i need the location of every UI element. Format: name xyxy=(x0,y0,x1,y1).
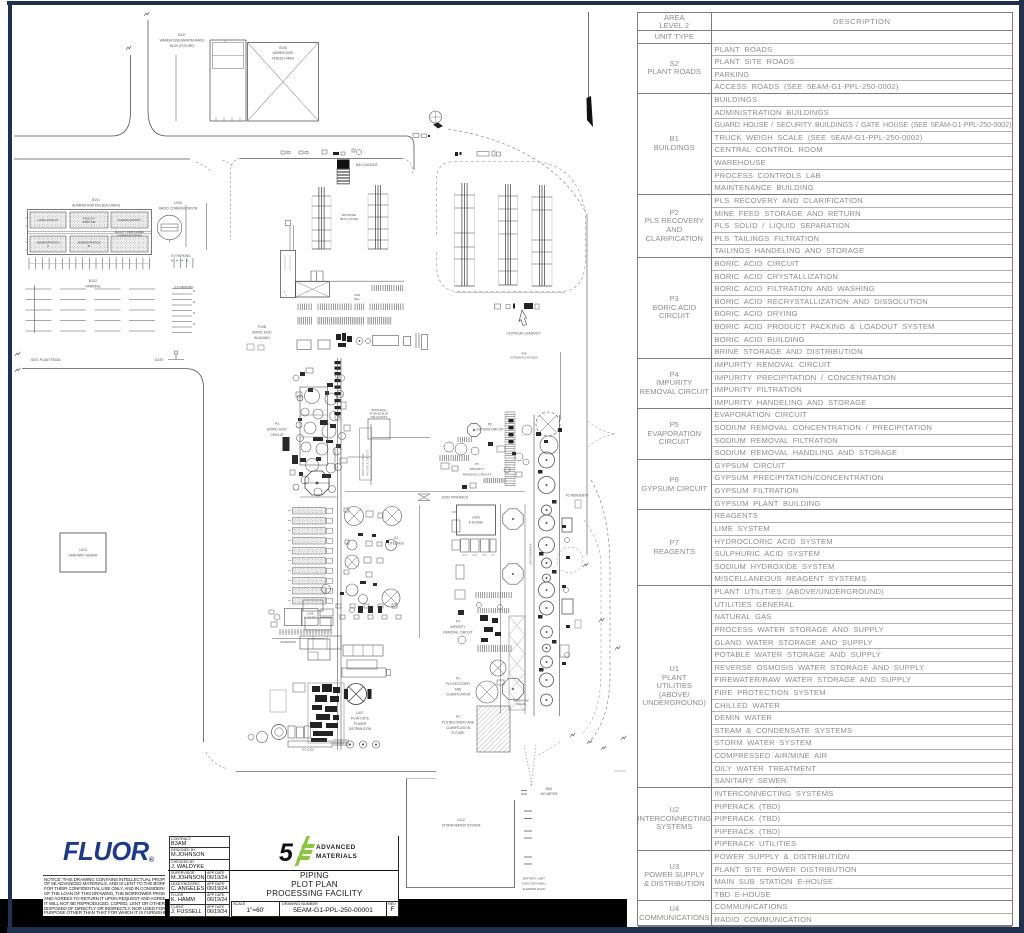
svg-text:PACKING & LOADOUT: PACKING & LOADOUT xyxy=(367,449,370,476)
svg-text:U203 PIPERACK: U203 PIPERACK xyxy=(333,448,337,470)
svg-text:BLDG (FUTURE): BLDG (FUTURE) xyxy=(170,44,195,48)
svg-text:PARKING: PARKING xyxy=(85,285,100,289)
svg-text:B105: B105 xyxy=(279,46,287,50)
svg-text:AND: AND xyxy=(455,687,462,691)
svg-text:FACILITY FIRST AID/EV: FACILITY FIRST AID/EV xyxy=(115,230,145,234)
svg-text:BA LOADOUT: BA LOADOUT xyxy=(356,163,378,167)
svg-text:WAREHOUSE/MAINTENANCE: WAREHOUSE/MAINTENANCE xyxy=(160,38,205,42)
svg-text:B102: B102 xyxy=(89,279,97,283)
svg-text:BATTERY LIMIT: BATTERY LIMIT xyxy=(523,877,545,881)
svg-text:U106: U106 xyxy=(174,201,182,205)
svg-text:P6: P6 xyxy=(488,423,492,427)
svg-text:U1: U1 xyxy=(394,536,398,540)
svg-text:CHANGE FACILITY: CHANGE FACILITY xyxy=(118,218,142,222)
svg-text:B107: B107 xyxy=(178,33,186,37)
svg-text:P1 REAGENTS: P1 REAGENTS xyxy=(566,494,588,498)
svg-text:MILL: MILL xyxy=(354,297,360,301)
svg-text:U108: U108 xyxy=(307,612,314,616)
svg-text:COMMUNICATIONS: COMMUNICATIONS xyxy=(117,234,142,238)
svg-text:E-HOUSE: E-HOUSE xyxy=(469,521,484,525)
svg-text:B: B xyxy=(88,244,90,248)
svg-text:U202 PIPERACK: U202 PIPERACK xyxy=(442,496,469,500)
svg-text:GATE: GATE xyxy=(155,358,165,362)
svg-text:GENERATOR: GENERATOR xyxy=(280,641,296,644)
svg-text:P6B: P6B xyxy=(522,352,527,356)
svg-text:P2: P2 xyxy=(456,715,460,719)
svg-text:2801: 2801 xyxy=(545,787,552,791)
svg-text:POWER: POWER xyxy=(354,722,367,726)
svg-text:DISTRIBUTION: DISTRIBUTION xyxy=(349,727,372,731)
svg-text:5: 5 xyxy=(279,839,294,867)
svg-text:LUNCH FACILITY: LUNCH FACILITY xyxy=(37,218,59,222)
svg-text:FUTURE: FUTURE xyxy=(452,731,465,735)
svg-text:EV PARKING: EV PARKING xyxy=(174,286,194,290)
svg-text:UTILITIES: UTILITIES xyxy=(388,541,405,545)
svg-text:INJECTION WELL: INJECTION WELL xyxy=(522,882,547,886)
svg-text:PLANT SITE: PLANT SITE xyxy=(351,716,369,720)
svg-text:P4: P4 xyxy=(456,620,460,624)
svg-text:GYPSUM PLANT BLDG: GYPSUM PLANT BLDG xyxy=(510,356,538,360)
svg-text:U113: U113 xyxy=(79,548,87,552)
svg-text:GC-Q101: GC-Q101 xyxy=(302,748,314,752)
svg-text:ADMINISTRATION BUILDINGS: ADMINISTRATION BUILDINGS xyxy=(72,204,121,208)
svg-text:ACCESS: ACCESS xyxy=(516,703,526,706)
svg-text:CLARIFICATION: CLARIFICATION xyxy=(446,726,471,730)
svg-text:FENCED AREA: FENCED AREA xyxy=(272,56,295,60)
svg-text:U201 PIPERACK: U201 PIPERACK xyxy=(529,543,533,565)
svg-text:P10B: P10B xyxy=(258,325,267,329)
svg-text:BORIC ACID: BORIC ACID xyxy=(252,331,272,335)
svg-text:FIRST AID: FIRST AID xyxy=(83,220,96,224)
svg-text:WAREHOUSE: WAREHOUSE xyxy=(273,51,294,55)
svg-text:BUILDING: BUILDING xyxy=(254,336,270,340)
svg-text:PLS RECOVERY: PLS RECOVERY xyxy=(446,682,472,686)
svg-text:CIRCUIT: CIRCUIT xyxy=(270,433,284,437)
svg-text:AND LOADOUT: AND LOADOUT xyxy=(370,416,388,419)
svg-text:P2: P2 xyxy=(456,677,460,681)
svg-text:A: A xyxy=(47,244,49,248)
svg-text:DRY/MIXED: DRY/MIXED xyxy=(342,213,356,217)
svg-text:BORIC ACID PROD.: BORIC ACID PROD. xyxy=(362,453,365,476)
svg-text:PLS RECOVERY AND: PLS RECOVERY AND xyxy=(442,720,475,724)
svg-text:RADIO COMMUNICATION: RADIO COMMUNICATION xyxy=(159,206,198,210)
svg-text:SLEEPER RACK: SLEEPER RACK xyxy=(522,887,545,891)
svg-text:REMOVAL CIRCUIT: REMOVAL CIRCUIT xyxy=(463,472,491,476)
svg-text:SANITARY SEWER: SANITARY SEWER xyxy=(68,554,98,558)
svg-text:B201 PLANT ROAD: B201 PLANT ROAD xyxy=(31,358,61,362)
svg-text:(BULK) STORE: (BULK) STORE xyxy=(340,217,358,221)
svg-text:B101: B101 xyxy=(92,198,100,202)
svg-text:REMOVAL CIRCUIT: REMOVAL CIRCUIT xyxy=(443,630,472,634)
svg-text:STORM WATER SYSTEM: STORM WATER SYSTEM xyxy=(442,824,481,828)
svg-text:P5: P5 xyxy=(475,462,479,466)
svg-text:NO METER: NO METER xyxy=(541,792,559,796)
svg-text:P3: P3 xyxy=(275,422,279,426)
svg-text:E-HOUSE: E-HOUSE xyxy=(304,615,316,619)
svg-text:FACILITY: FACILITY xyxy=(83,216,95,220)
svg-text:GYPSUM LOADOUT: GYPSUM LOADOUT xyxy=(507,332,541,336)
svg-text:U103: U103 xyxy=(472,516,480,520)
svg-text:EV PARKING: EV PARKING xyxy=(171,254,191,258)
svg-text:BORIC ACID: BORIC ACID xyxy=(267,428,287,432)
svg-text:CLARIFICATION: CLARIFICATION xyxy=(446,693,471,697)
svg-text:IMPURITY: IMPURITY xyxy=(470,467,485,471)
svg-text:U112: U112 xyxy=(457,818,465,822)
svg-text:IMPURITY: IMPURITY xyxy=(450,625,466,629)
svg-text:MATERIALS: MATERIALS xyxy=(316,853,358,860)
svg-text:U107: U107 xyxy=(356,711,364,715)
svg-text:ADMINISTRATION: ADMINISTRATION xyxy=(37,240,60,244)
svg-text:ADMINISTRATION: ADMINISTRATION xyxy=(78,240,101,244)
svg-text:HUB: HUB xyxy=(354,293,360,297)
svg-text:ADVANCED: ADVANCED xyxy=(316,844,356,851)
